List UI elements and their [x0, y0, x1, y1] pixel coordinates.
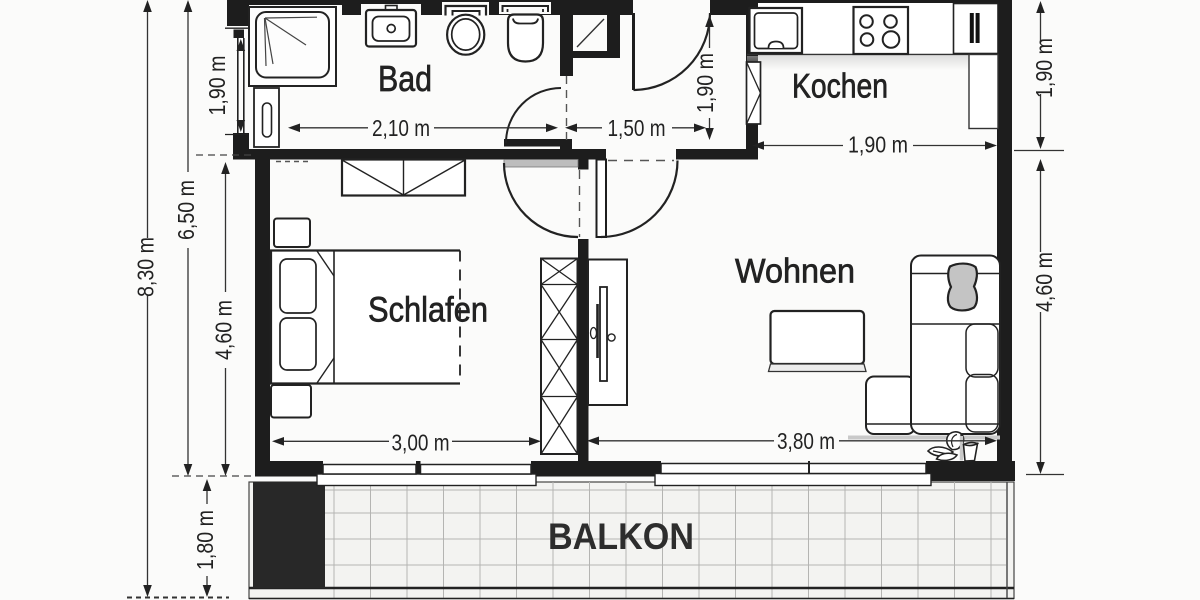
svg-text:6,50 m: 6,50 m [173, 180, 199, 240]
svg-text:1,90 m: 1,90 m [204, 56, 230, 116]
svg-text:Schlafen: Schlafen [368, 291, 488, 330]
svg-text:BALKON: BALKON [548, 516, 694, 557]
svg-text:Bad: Bad [378, 58, 432, 99]
svg-text:1,90 m: 1,90 m [1031, 38, 1057, 98]
svg-text:3,80 m: 3,80 m [777, 428, 835, 454]
svg-text:1,90 m: 1,90 m [848, 132, 908, 158]
svg-text:1,90 m: 1,90 m [692, 53, 718, 113]
svg-text:Kochen: Kochen [792, 68, 888, 106]
svg-text:1,80 m: 1,80 m [192, 510, 218, 570]
svg-text:8,30 m: 8,30 m [133, 237, 159, 297]
svg-text:4,60 m: 4,60 m [1031, 252, 1057, 312]
svg-text:2,10 m: 2,10 m [372, 115, 430, 141]
svg-text:3,00 m: 3,00 m [392, 430, 450, 456]
svg-text:4,60 m: 4,60 m [211, 300, 237, 360]
svg-text:1,50 m: 1,50 m [608, 115, 666, 141]
svg-text:Wohnen: Wohnen [735, 253, 855, 291]
